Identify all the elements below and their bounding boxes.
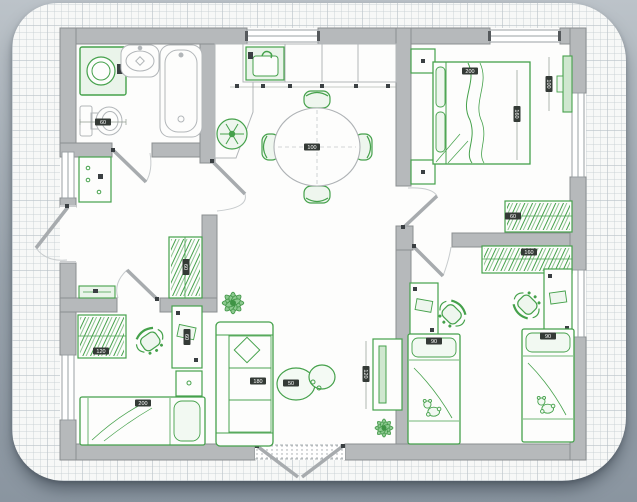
wall-segment [345,444,586,460]
window-bedroom-right [572,93,584,177]
floor-plan-drawing: 60 100 [0,0,637,502]
wardrobe-icon: 120 [78,315,126,358]
window-kids-room-right [572,270,584,337]
wall-segment [396,28,411,186]
wall-segment [60,28,247,44]
plant-icon [375,419,393,437]
bathtub-icon [160,45,202,137]
shoe-shelf-icon [79,286,115,298]
washing-machine-icon [80,47,126,95]
hall-wardrobe-icon: 60 [169,237,202,298]
sofa-icon: 180 [216,322,273,446]
wall-segment [152,143,200,157]
svg-text:180: 180 [253,379,262,385]
french-doors [255,444,345,477]
kitchen-sink-icon [246,47,284,80]
wall-segment [452,233,570,247]
svg-text:60: 60 [182,264,188,270]
single-bed-icon: 90 [408,334,460,444]
hob-icon [217,119,247,149]
plant-icon [222,292,244,314]
svg-text:90: 90 [431,339,437,345]
window-bedroom-top [488,30,561,42]
svg-text:160: 160 [524,250,533,256]
window-child-room-left [62,355,74,420]
svg-text:60: 60 [100,120,106,126]
desk-icon [544,269,572,333]
wardrobe-icon: 60 [505,201,572,232]
single-bed-icon: 200 [80,397,205,445]
desk-icon: 60 [172,306,202,368]
svg-text:60: 60 [510,214,516,220]
svg-text:120: 120 [96,349,105,355]
entrance-door [36,204,76,263]
dresser-icon [79,157,111,202]
svg-text:90: 90 [545,334,551,340]
svg-text:200: 200 [138,401,147,407]
wall-segment [60,420,76,460]
wall-segment [60,28,76,152]
floor-plan-background: 60 100 [0,0,637,502]
window-kitchen [245,30,320,42]
wall-segment [202,215,217,312]
svg-text:50: 50 [288,381,294,387]
svg-text:120: 120 [362,369,368,378]
svg-text:160: 160 [513,109,519,118]
nightstand-icon [176,371,202,396]
wall-segment [396,226,413,250]
sink-icon [121,45,159,77]
wall-segment [60,298,117,312]
desk-icon [410,283,438,335]
svg-text:100: 100 [545,79,551,88]
single-bed-icon: 90 [522,329,574,442]
svg-text:100: 100 [307,145,316,151]
window-hall-left [62,152,74,198]
svg-text:200: 200 [465,69,474,75]
svg-text:60: 60 [183,334,189,340]
